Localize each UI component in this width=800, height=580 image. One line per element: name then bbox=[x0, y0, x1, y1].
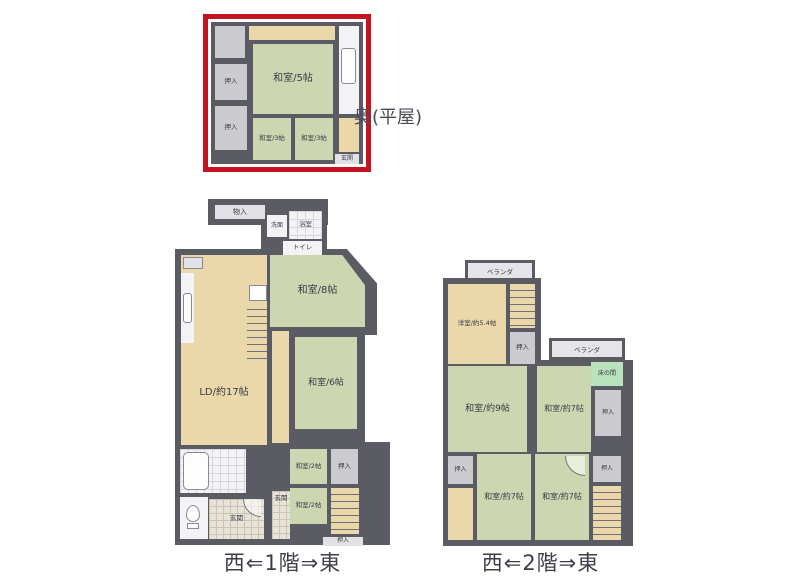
staircase bbox=[593, 486, 621, 540]
annex-highlight-frame: 和室/5帖 押入 押入 和室/3帖 和室/3帖 玄関 bbox=[203, 14, 371, 172]
closet-oshiire: 押入 bbox=[215, 106, 247, 150]
annex-kitchen bbox=[339, 26, 359, 114]
plan-floor2: ベランダ ベランダ 洋室/約5.4帖 押入 和室/約9帖 和室/約7帖 床の間 … bbox=[443, 258, 638, 548]
annex-walls: 和室/5帖 押入 押入 和室/3帖 和室/3帖 玄関 bbox=[211, 22, 363, 164]
bathtub-icon bbox=[183, 452, 209, 490]
room-washitsu-7: 和室/約7帖 bbox=[537, 366, 591, 452]
closet-oshiire: 押入 bbox=[215, 64, 247, 100]
closet-oshiire: 押入 bbox=[448, 456, 473, 484]
toilet-room: トイレ bbox=[283, 241, 322, 255]
toilet-icon bbox=[186, 505, 200, 522]
washroom-senmen: 洗面 bbox=[267, 215, 287, 237]
cabinet-icon bbox=[249, 285, 267, 301]
room-washitsu-2: 和室/2帖 bbox=[290, 449, 327, 484]
staircase bbox=[510, 284, 535, 328]
caption-floor1: 西⇐1階⇒東 bbox=[175, 547, 390, 577]
bathroom-yokushitsu: 浴室 bbox=[289, 211, 322, 239]
tokonoma-alcove: 床の間 bbox=[591, 362, 623, 386]
staircase bbox=[331, 488, 359, 534]
room-washitsu-9: 和室/約9帖 bbox=[448, 366, 527, 452]
room-label: LD/約17帖 bbox=[199, 387, 248, 399]
hallway bbox=[272, 331, 289, 443]
veranda: ベランダ bbox=[549, 338, 625, 360]
room-washitsu-7: 和室/約7帖 bbox=[477, 454, 531, 540]
closet-oshiire: 押入 bbox=[331, 449, 358, 484]
room-washitsu-3: 和室/3帖 bbox=[295, 118, 333, 160]
entrance-genkan: 玄関 bbox=[272, 491, 290, 539]
room-youshitsu: 洋室/約5.4帖 bbox=[448, 284, 506, 364]
kitchen-sink-icon bbox=[341, 48, 356, 84]
room-washitsu-5: 和室/5帖 bbox=[253, 44, 333, 114]
closet-oshiire: 押入 bbox=[595, 390, 621, 436]
hallway bbox=[448, 488, 473, 540]
staircase bbox=[247, 303, 267, 361]
closet-oshiire: 押入 bbox=[323, 537, 363, 546]
closet-oshiire: 押入 bbox=[593, 456, 621, 482]
annex-title: 奥(平屋) bbox=[354, 103, 422, 129]
bathroom bbox=[180, 449, 246, 493]
plan-floor1: 物入 洗面 浴室 トイレ 和室/8帖 LD/約17帖 和室/6帖 和室/2帖 和… bbox=[175, 197, 390, 548]
room-washitsu-3: 和室/3帖 bbox=[253, 118, 291, 160]
storage-monoire: 物入 bbox=[215, 205, 265, 219]
closet-oshiire: 押入 bbox=[510, 332, 535, 364]
stove-icon bbox=[183, 257, 203, 269]
annex-engawa-corridor bbox=[249, 26, 335, 40]
toilet-room bbox=[180, 497, 208, 539]
entrance-genkan: 玄関 bbox=[335, 154, 359, 164]
room-washitsu-2: 和室/2帖 bbox=[290, 488, 327, 524]
kitchen-sink-icon bbox=[183, 293, 192, 323]
room-washitsu-6: 和室/6帖 bbox=[295, 337, 357, 429]
caption-floor2: 西⇐2階⇒東 bbox=[443, 547, 638, 577]
kitchen-counter bbox=[181, 273, 194, 343]
toilet-tank-icon bbox=[187, 523, 199, 529]
annex-utility-room bbox=[215, 26, 245, 58]
